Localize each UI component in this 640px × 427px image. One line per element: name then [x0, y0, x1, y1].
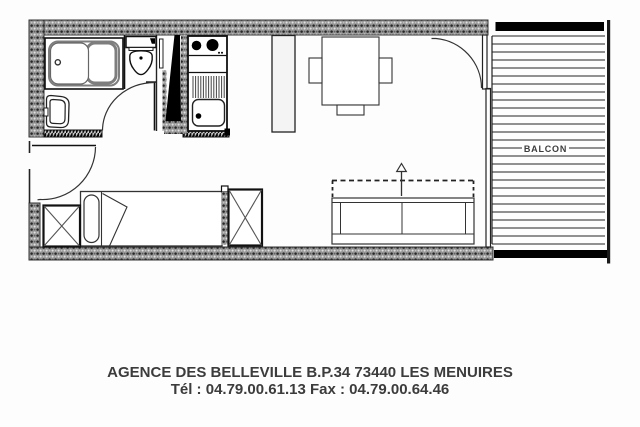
svg-text:AGENCE DES BELLEVILLE B.P.34 7: AGENCE DES BELLEVILLE B.P.34 73440 LES M… [107, 364, 513, 381]
svg-text:BALCON: BALCON [524, 144, 567, 154]
svg-text:Tél : 04.79.00.61.13 Fax : 04: Tél : 04.79.00.61.13 Fax : 04.79.00.64.4… [171, 381, 450, 398]
